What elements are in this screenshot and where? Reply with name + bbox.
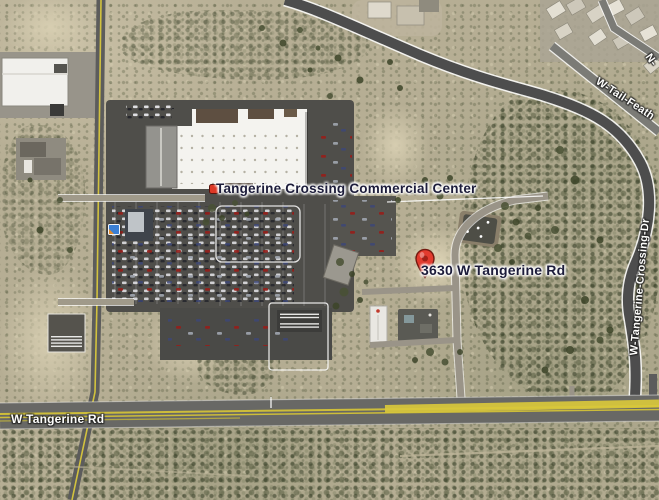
- gabled-shops-building: [146, 126, 177, 188]
- residential-houses-top-right: [540, 0, 659, 74]
- road-label-tangerine: W Tangerine Rd: [11, 412, 104, 426]
- store-building: [172, 109, 308, 192]
- pad-building-bank: [125, 209, 153, 241]
- address-label: 3630 W Tangerine Rd: [421, 262, 565, 278]
- photo-icon[interactable]: [108, 224, 120, 235]
- building-left-mid: [48, 314, 85, 352]
- pad-building-white: [370, 306, 387, 343]
- industrial-building-top-left: [0, 52, 100, 118]
- desert-trails: [60, 446, 659, 476]
- pad-building-complex: [398, 309, 438, 342]
- building-cluster-left: [16, 138, 66, 180]
- satellite-map-canvas[interactable]: Tangerine Crossing Commercial Center 363…: [0, 0, 659, 500]
- commercial-center-label: Tangerine Crossing Commercial Center: [216, 181, 477, 196]
- shade-canopy-structure: [277, 310, 322, 332]
